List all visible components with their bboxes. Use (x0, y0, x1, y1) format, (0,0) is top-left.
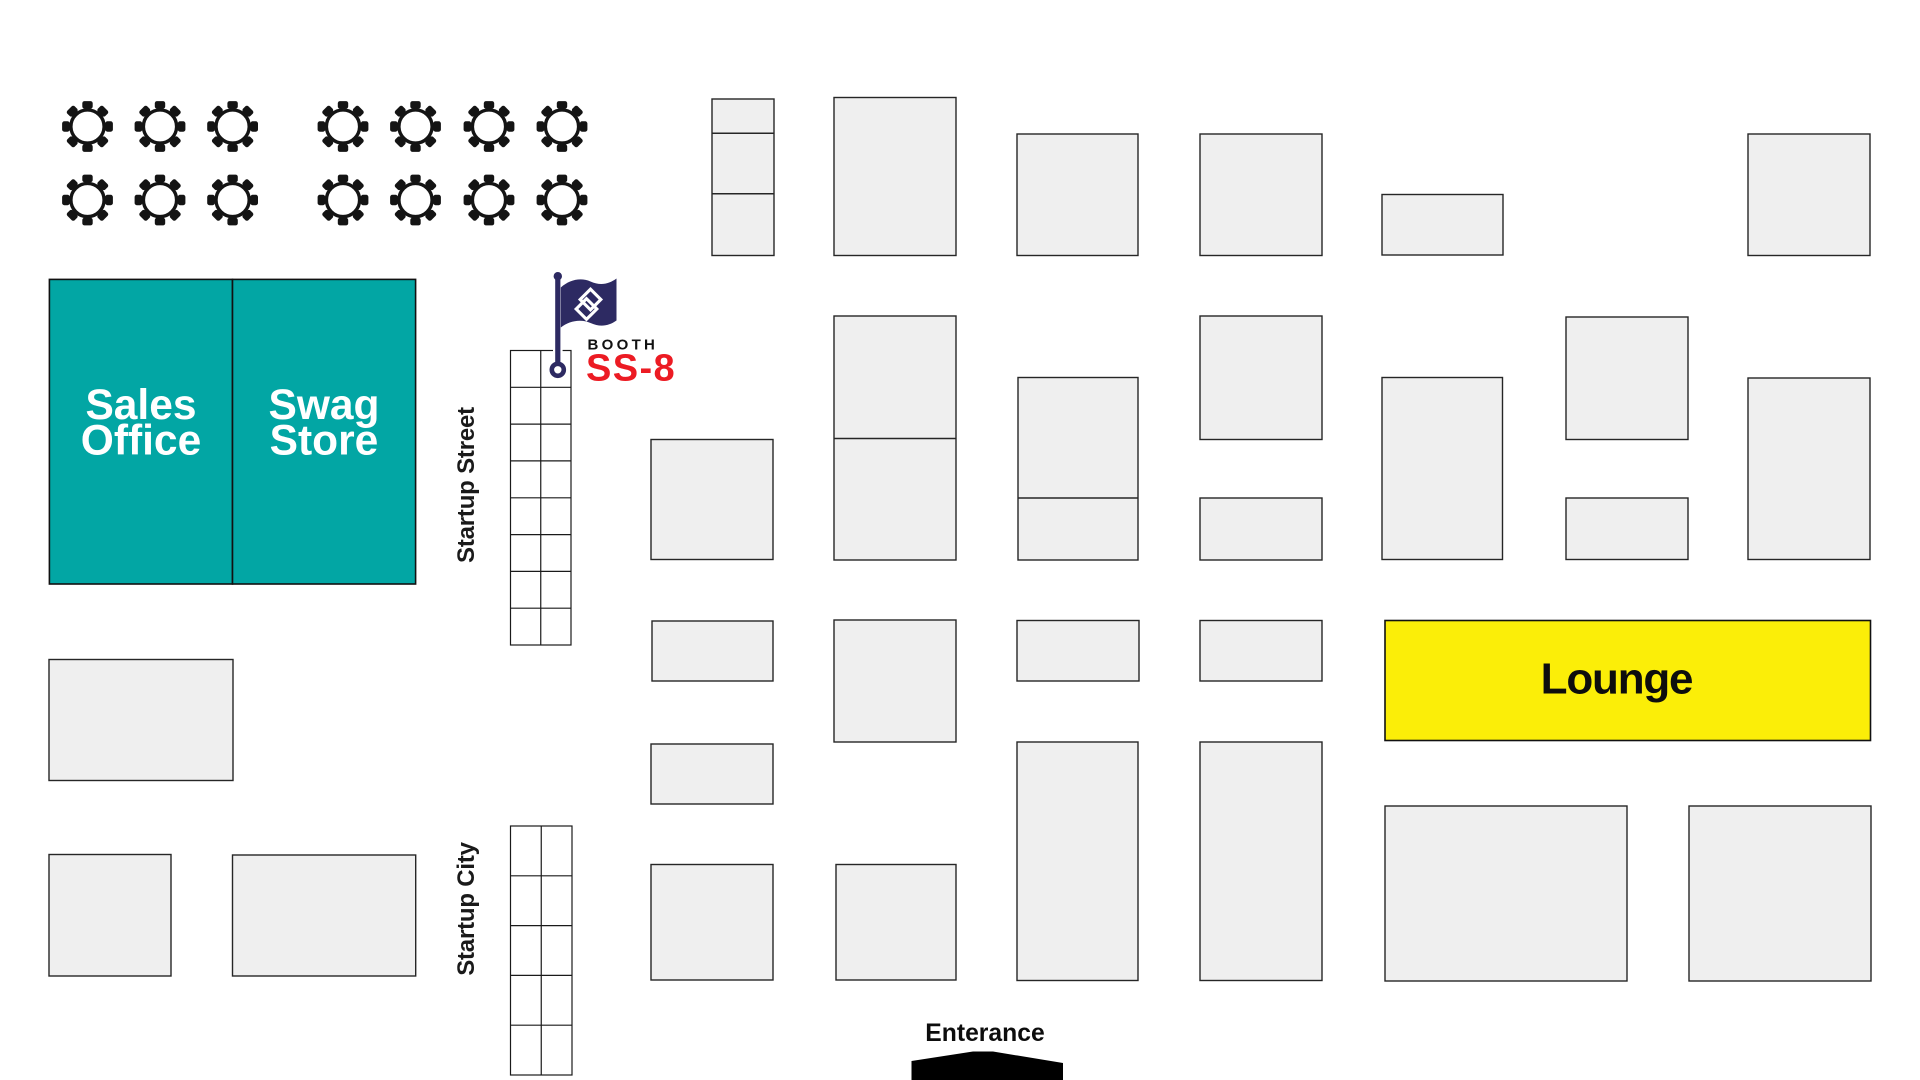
svg-text:Office: Office (81, 417, 201, 464)
svg-text:Startup Street: Startup Street (453, 407, 480, 563)
svg-text:SS-8: SS-8 (586, 348, 676, 390)
svg-text:Store: Store (270, 417, 379, 464)
svg-text:Startup City: Startup City (453, 841, 480, 975)
svg-text:Enterance: Enterance (925, 1020, 1044, 1047)
svg-text:Lounge: Lounge (1541, 655, 1693, 704)
